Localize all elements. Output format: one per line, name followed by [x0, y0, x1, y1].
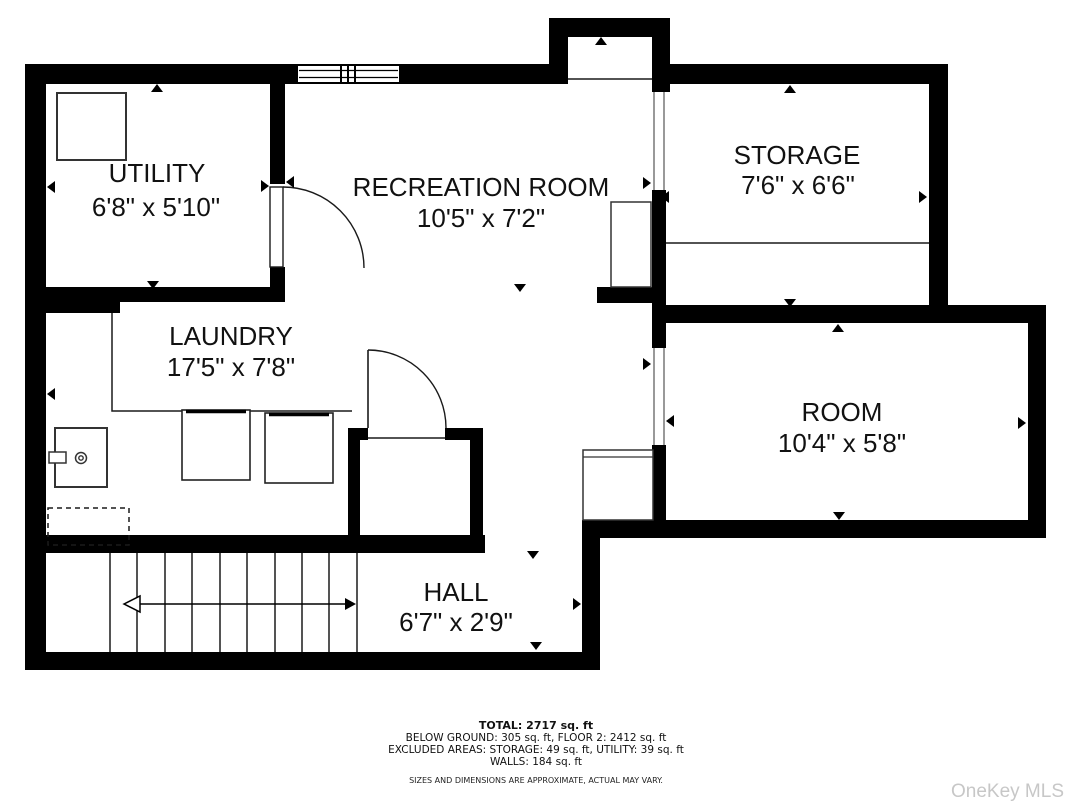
- room-label: ROOM: [802, 397, 883, 427]
- dimension-arrow-left: [47, 388, 55, 400]
- recreation-dims: 10'5" x 7'2": [417, 203, 545, 233]
- wall-top-right: [670, 64, 948, 84]
- hall-dims: 6'7" x 2'9": [399, 607, 513, 637]
- floor-plan-page: UTILITY 6'8" x 5'10" RECREATION ROOM 10'…: [0, 0, 1072, 804]
- dimension-arrow-up: [784, 85, 796, 93]
- utility-door: [270, 187, 364, 268]
- dimension-arrow-left: [286, 176, 294, 188]
- wall-divider-upper-stub: [652, 84, 670, 92]
- stair-direction-arrow: [124, 596, 356, 612]
- dimension-arrow-right: [643, 177, 651, 189]
- closet-box: [583, 450, 653, 520]
- wall-utility-bottom: [46, 287, 285, 302]
- wall-storage-room-divider: [653, 305, 1046, 323]
- door-leaf: [270, 187, 283, 267]
- dimension-arrow-left: [47, 181, 55, 193]
- furnace-valve-inner: [79, 456, 83, 460]
- room-doorway-opening: [654, 348, 664, 445]
- stair-arrow-tail: [345, 598, 356, 610]
- wall-rec-stub: [597, 287, 652, 303]
- dimension-arrow-down: [514, 284, 526, 292]
- dimension-arrow-down: [530, 642, 542, 650]
- utility-dims: 6'8" x 5'10": [92, 192, 220, 222]
- door-swing-arc: [368, 350, 446, 428]
- wall-storage-right: [929, 64, 948, 323]
- understair-closet-door: [368, 350, 446, 438]
- utility-equipment-box: [57, 93, 126, 160]
- dimension-arrow-right: [643, 358, 651, 370]
- wall-room-right: [1028, 305, 1046, 538]
- stairs: [110, 553, 357, 652]
- dimension-arrow-right: [1018, 417, 1026, 429]
- window: [297, 65, 400, 83]
- wall-divider-lower: [652, 445, 666, 522]
- dimension-arrow-right: [573, 598, 581, 610]
- wall-room-bottom: [582, 520, 1046, 538]
- dimension-arrow-left: [666, 415, 674, 427]
- washer: [182, 410, 250, 480]
- dimension-arrow-down: [527, 551, 539, 559]
- floor-plan-drawing: UTILITY 6'8" x 5'10" RECREATION ROOM 10'…: [0, 0, 1072, 804]
- wall-utility-right-upper: [270, 84, 285, 184]
- storage-dims: 7'6" x 6'6": [741, 170, 855, 200]
- dryer-box: [265, 413, 333, 483]
- utility-label: UTILITY: [109, 158, 206, 188]
- wall-laundry-stairs: [25, 535, 485, 553]
- rec-room-chase-box: [611, 202, 651, 287]
- wall-outer-left: [25, 64, 46, 670]
- dimension-arrow-up: [151, 84, 163, 92]
- recreation-label: RECREATION ROOM: [353, 172, 610, 202]
- area-summary: TOTAL: 2717 sq. ft BELOW GROUND: 305 sq.…: [388, 719, 684, 785]
- wall-utility-bottom-step: [46, 302, 120, 313]
- wall-outer-bottom: [25, 652, 600, 670]
- summary-disclaimer: SIZES AND DIMENSIONS ARE APPROXIMATE, AC…: [409, 776, 663, 785]
- storage-opening: [654, 92, 664, 190]
- dryer: [265, 413, 333, 483]
- summary-below-ground: BELOW GROUND: 305 sq. ft, FLOOR 2: 2412 …: [406, 732, 667, 744]
- hall-label: HALL: [423, 577, 488, 607]
- alcove-interior: [568, 37, 652, 84]
- summary-total: TOTAL: 2717 sq. ft: [479, 719, 593, 732]
- furnace: [49, 428, 107, 487]
- wall-closet-right: [470, 428, 483, 538]
- room-dims: 10'4" x 5'8": [778, 428, 906, 458]
- laundry-dims: 17'5" x 7'8": [167, 352, 295, 382]
- room-side-closet: [583, 450, 653, 520]
- laundry-label: LAUNDRY: [169, 321, 293, 351]
- dimension-arrow-down: [833, 512, 845, 520]
- summary-walls: WALLS: 184 sq. ft: [490, 756, 582, 768]
- dimension-arrow-right: [919, 191, 927, 203]
- furnace-pipe: [49, 452, 66, 463]
- wall-closet-left: [348, 428, 360, 538]
- watermark-logo: OneKey MLS: [951, 781, 1064, 802]
- dimension-arrow-up: [832, 324, 844, 332]
- summary-excluded: EXCLUDED AREAS: STORAGE: 49 sq. ft, UTIL…: [388, 744, 684, 756]
- storage-label: STORAGE: [734, 140, 861, 170]
- wall-hall-right: [582, 520, 600, 670]
- washer-box: [182, 410, 250, 480]
- dimension-arrow-right: [261, 180, 269, 192]
- wall-divider-mid: [652, 190, 666, 348]
- stair-arrow-head-open: [124, 596, 140, 612]
- wall-top-left: [25, 64, 549, 84]
